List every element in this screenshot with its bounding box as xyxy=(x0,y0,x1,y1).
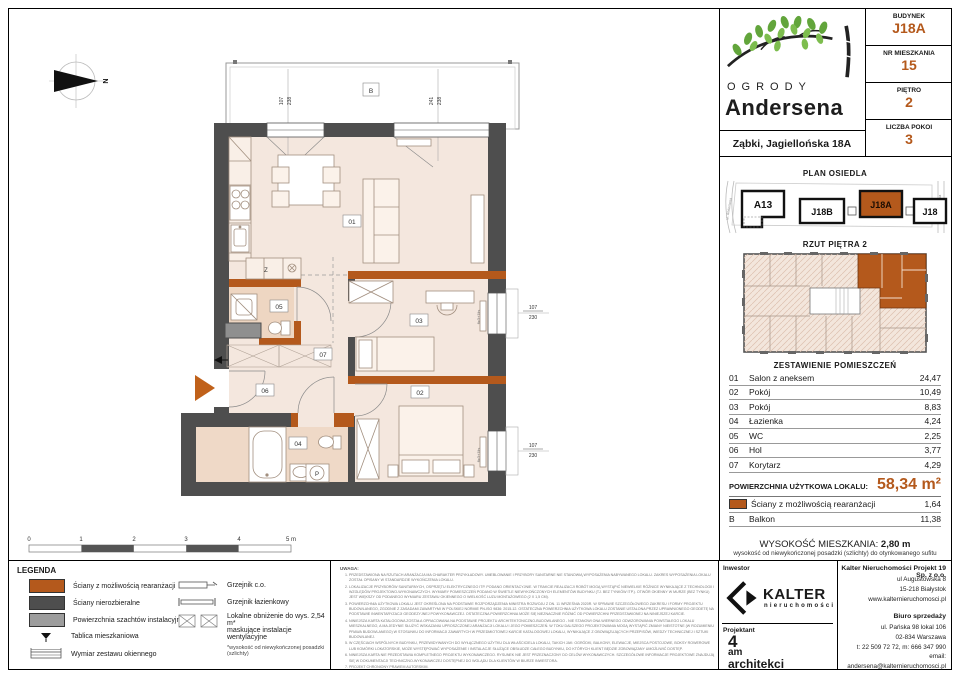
dim-w3: 107 xyxy=(529,305,538,311)
building-a13-label: A13 xyxy=(754,200,773,211)
bed-room02 xyxy=(388,406,474,477)
overview-core xyxy=(810,288,860,314)
legend-item-radiator-co: Grzejnik c.o. xyxy=(177,579,266,591)
tv-cabinet xyxy=(471,195,484,263)
entry-arrow-icon xyxy=(195,375,215,401)
dim-w4: 107 xyxy=(529,443,538,449)
ceiling-drop-line1: Lokalne obniżenie do wys. 2,54 m* xyxy=(227,613,325,627)
building-j18b: J18B xyxy=(800,199,844,223)
washer-wc xyxy=(231,294,257,320)
installation-shaft xyxy=(225,323,261,338)
sidebar: OGRODY Andersena Ząbki, Jagiellońska 18A… xyxy=(719,9,951,560)
toilet-bathroom xyxy=(319,436,342,449)
radiator-co-icon xyxy=(177,579,219,591)
toilet-wc xyxy=(269,321,291,335)
room-label-05: 05 xyxy=(270,300,288,312)
notes-title: UWAGA: xyxy=(340,566,359,571)
scale-1: 1 xyxy=(79,537,83,543)
footer-divider xyxy=(722,623,833,624)
building-j18-label: J18 xyxy=(922,207,937,217)
dim-h4: 230 xyxy=(529,453,538,459)
site-plan-map: ul. Andersena ul. Jagiellońska A13 J18B … xyxy=(722,179,948,235)
table-row: 01 Salon z aneksem 24,47 xyxy=(729,371,941,386)
designer-logo: 4 am architekci xyxy=(728,635,784,670)
window-right-room02 xyxy=(488,427,518,475)
dining-table xyxy=(272,155,340,207)
legend-item-window-dimension: Wymiar zestawu okiennego xyxy=(29,646,157,662)
wardrobe-room03 xyxy=(349,281,393,303)
scale-2: 2 xyxy=(132,537,136,543)
svg-text:03: 03 xyxy=(415,318,423,325)
legend-item-radiator-bathroom: Grzejnik łazienkowy xyxy=(177,596,289,608)
building-j18a-label: J18A xyxy=(870,200,892,210)
legend-footnote: *wysokość od niewykończonej posadzki (sz… xyxy=(227,645,330,657)
wardrobe-room02 xyxy=(357,419,379,479)
legend-title: LEGENDA xyxy=(17,566,56,575)
svg-text:05: 05 xyxy=(275,304,283,311)
orange-wall-swatch xyxy=(729,499,747,509)
building-j18: J18 xyxy=(914,199,946,223)
field-rooms: LICZBA POKOI 3 xyxy=(866,120,952,156)
north-label: N xyxy=(101,78,108,83)
building-j18a-highlighted: J18A xyxy=(860,191,902,217)
floor-overview-plan xyxy=(740,250,930,356)
designer-logo-architekci: architekci xyxy=(728,658,784,670)
note-item: LOKALIZACJE PRZYBORÓW SANITARNYCH, OSPRZ… xyxy=(349,585,717,601)
kitchen-z-label: Z xyxy=(264,268,268,274)
kalter-sub: nieruchomości xyxy=(764,603,835,609)
svg-text:06: 06 xyxy=(261,388,269,395)
field-floor: PIĘTRO 2 xyxy=(866,83,952,120)
bathtub xyxy=(249,427,286,482)
wall-area-row: Ściany z możliwością rearanżacji 1,64 xyxy=(729,497,941,513)
washer-p-label: P xyxy=(315,472,319,478)
svg-text:02: 02 xyxy=(416,390,424,397)
field-floor-label: PIĘTRO xyxy=(866,83,952,94)
room-label-03: 03 xyxy=(410,314,428,326)
north-arrow-icon: N xyxy=(49,54,108,108)
bottom-band: LEGENDA Ściany z możliwością rearanżacji… xyxy=(9,560,951,670)
balcony-area-row: B Balkon 11,38 xyxy=(729,513,941,528)
floor-plan-area: 107 238 241 238 xyxy=(9,9,720,560)
sales-office-title: Biuro sprzedaży xyxy=(841,613,946,620)
bed-room03 xyxy=(356,337,434,371)
radiator-room03 xyxy=(480,301,486,331)
radiator-living xyxy=(397,139,431,146)
note-item: W CZĘŚCIACH WSPÓLNYCH BUDYNKU, PRZEWIDYW… xyxy=(349,641,717,651)
shaft-swatch xyxy=(29,613,65,627)
table-row: 07 Korytarz 4,29 xyxy=(729,458,941,473)
field-rooms-value: 3 xyxy=(866,131,952,148)
dim-w1: 107 xyxy=(279,97,285,106)
notes-list: PRZEDSTAWIONA NA RZUTACH ARANŻACJA MA CH… xyxy=(340,573,717,672)
svg-text:B: B xyxy=(369,88,373,95)
orange-wall-swatch xyxy=(29,579,65,593)
connector-1 xyxy=(848,207,856,215)
apartment-card-page: 107 238 241 238 xyxy=(0,0,960,678)
stove xyxy=(230,186,250,220)
page-frame: 107 238 241 238 xyxy=(8,8,952,670)
scale-5: 5 m xyxy=(286,537,296,543)
dark-wall-swatch xyxy=(29,596,65,610)
notes-panel: UWAGA: PRZEDSTAWIONA NA RZUTACH ARANŻACJ… xyxy=(330,561,719,670)
floor-plan-drawing: 107 238 241 238 xyxy=(9,9,719,560)
brand-top-label: OGRODY xyxy=(727,81,812,93)
height-sub-note: wysokość od niewykończonej posadzki (szl… xyxy=(719,550,951,557)
legend-item-rearrangeable-walls: Ściany z możliwością rearanżacji xyxy=(29,579,175,593)
height-value: 2,80 m xyxy=(881,539,911,550)
note-item: PRZEDSTAWIONA NA RZUTACH ARANŻACJA MA CH… xyxy=(349,573,717,583)
sofa xyxy=(363,179,399,263)
table-row: 06 Hol 3,77 xyxy=(729,444,941,459)
investor-right-column: Kalter Nieruchomości Projekt 19 Sp. z o.… xyxy=(837,561,951,670)
total-area-value: 58,34 m² xyxy=(877,476,941,494)
kalter-name: KALTER xyxy=(763,586,826,603)
note-item: POWIERZCHNIA UŻYTKOWA LOKALU JEST OKREŚL… xyxy=(349,602,717,618)
window-dimension-icon xyxy=(29,646,63,662)
ceiling-drop-line2: maskujące instalacje wentylacyjne xyxy=(227,627,292,641)
brand-name-label: Andersena xyxy=(725,95,843,121)
note-item: NINIEJSZA KARTA KATALOGOWA ZOSTAŁA OPRAC… xyxy=(349,619,717,640)
svg-text:01: 01 xyxy=(348,219,356,226)
field-floor-value: 2 xyxy=(866,94,952,111)
investor-panel: Inwestor KALTER nieruchomości Projektant… xyxy=(718,561,951,670)
field-apartment-label: NR MIESZKANIA xyxy=(866,46,952,57)
field-rooms-label: LICZBA POKOI xyxy=(866,120,952,131)
tree-branch-icon xyxy=(723,13,863,79)
building-a13: A13 xyxy=(742,191,784,227)
room-label-01: 01 xyxy=(343,215,361,227)
table-row: 03 Pokój 8,83 xyxy=(729,400,941,415)
investor-left-column: Inwestor KALTER nieruchomości Projektant… xyxy=(718,561,838,670)
sales-office-details: ul. Pańska 98 lokal 106 02-834 Warszawa … xyxy=(841,623,946,672)
radiator-bathroom-icon xyxy=(177,596,219,608)
field-apartment-value: 15 xyxy=(866,57,952,74)
svg-text:04: 04 xyxy=(294,441,302,448)
balcony-label: B xyxy=(363,83,379,96)
field-building: BUDYNEK J18A xyxy=(866,9,952,46)
kitchen-sink xyxy=(231,225,249,252)
svg-text:07: 07 xyxy=(319,352,327,359)
kalter-logo-icon xyxy=(726,579,760,617)
legend-item-info-board: Tablica mieszkaniowa xyxy=(29,630,139,642)
legend-item-shafts: Powierzchnia szachtów instalacyjnych xyxy=(29,613,191,627)
room-label-06: 06 xyxy=(256,384,274,396)
brand-logo: OGRODY Andersena Ząbki, Jagiellońska 18A xyxy=(719,9,865,156)
total-area-row: POWIERZCHNIA UŻYTKOWA LOKALU: 58,34 m² xyxy=(729,473,941,497)
dim-w2: 241 xyxy=(429,97,435,106)
window-right-room03 xyxy=(488,289,518,338)
height-label: WYSOKOŚĆ MIESZKANIA: xyxy=(760,539,879,550)
dim-h2: 238 xyxy=(437,97,443,106)
apartment-height-note: WYSOKOŚĆ MIESZKANIA: 2,80 m wysokość od … xyxy=(719,539,951,557)
kitchen-lower-counter xyxy=(246,258,301,279)
dim-h1: 238 xyxy=(287,97,293,106)
legend-item-structural-walls: Ściany nierozbieralne xyxy=(29,596,140,610)
scale-3: 3 xyxy=(184,537,188,543)
project-address: Ząbki, Jagiellońska 18A xyxy=(719,130,865,157)
investor-label: Inwestor xyxy=(723,565,750,572)
building-j18b-label: J18B xyxy=(811,207,833,217)
room-label-07: 07 xyxy=(314,348,332,360)
note-item: PROJEKT CHRONIONY PRAWEM AUTORSKIM. xyxy=(349,665,717,670)
scale-4: 4 xyxy=(237,537,241,543)
scale-bar: 0 1 2 3 4 5 m xyxy=(27,537,296,552)
table-row: 04 Łazienka 4,24 xyxy=(729,415,941,430)
room-label-02: 02 xyxy=(411,386,429,398)
room-label-04: 04 xyxy=(289,437,307,449)
field-building-value: J18A xyxy=(866,20,952,37)
radiator-room02 xyxy=(480,437,486,467)
legend-item-ceiling-drop: Lokalne obniżenie do wys. 2,54 m* maskuj… xyxy=(177,613,330,641)
table-row: 05 WC 2,25 xyxy=(729,429,941,444)
note-item: NINIEJSZA KARTA NIE PRZEDSTAWIA KOMPLETN… xyxy=(349,653,717,663)
dim-h3: 230 xyxy=(529,315,538,321)
title-block: OGRODY Andersena Ząbki, Jagiellońska 18A… xyxy=(719,9,951,157)
rooms-table-title: ZESTAWIENIE POMIESZCZEŃ xyxy=(719,361,951,370)
legend-panel: LEGENDA Ściany z możliwością rearanżacji… xyxy=(9,561,331,670)
scale-0: 0 xyxy=(27,537,31,543)
site-plan-title: PLAN OSIEDLA xyxy=(719,169,951,178)
field-building-label: BUDYNEK xyxy=(866,9,952,20)
connector-2 xyxy=(906,207,914,215)
rooms-table: 01 Salon z aneksem 24,47 02 Pokój 10,49 … xyxy=(729,371,941,527)
table-row: 02 Pokój 10,49 xyxy=(729,386,941,401)
unit-info-fields: BUDYNEK J18A NR MIESZKANIA 15 PIĘTRO 2 L… xyxy=(865,9,952,156)
field-apartment-number: NR MIESZKANIA 15 xyxy=(866,46,952,83)
company-address: ul Augustowska 8 15-218 Białystok www.ka… xyxy=(841,575,946,604)
floor-overview-title: RZUT PIĘTRA 2 xyxy=(719,240,951,249)
total-area-label: POWIERZCHNIA UŻYTKOWA LOKALU: xyxy=(729,482,877,494)
info-board-icon xyxy=(29,630,63,642)
ceiling-drop-icon xyxy=(177,613,219,629)
